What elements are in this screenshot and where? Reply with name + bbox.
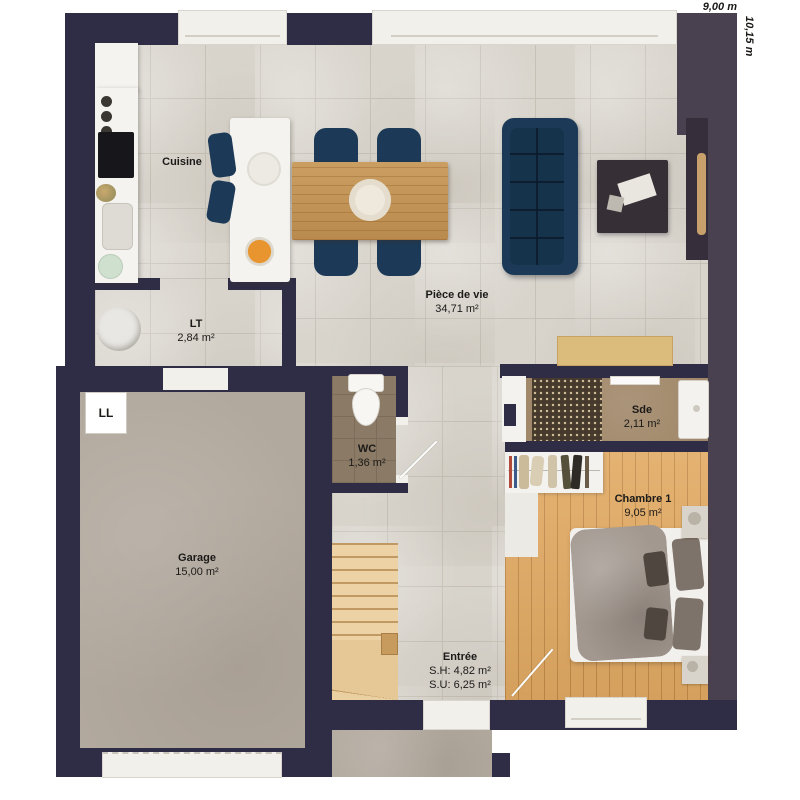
room-area-su: S.U: 6,25 m²: [410, 679, 510, 693]
room-label-entree: Entrée S.H: 4,82 m² S.U: 6,25 m²: [410, 651, 510, 692]
sde-door-handle: [504, 404, 516, 426]
console-bench: [557, 336, 673, 366]
wardrobe-return: [505, 493, 538, 557]
garage-door: [102, 752, 282, 778]
room-label-chambre1: Chambre 1 9,05 m²: [603, 493, 683, 521]
wall-living-sde: [500, 364, 708, 378]
clothes-item: [519, 455, 529, 489]
room-area: 2,11 m²: [602, 418, 682, 432]
water-heater: [97, 307, 141, 351]
wc-door-jamb-top: [396, 417, 408, 425]
front-door: [423, 700, 490, 730]
room-area: 15,00 m²: [157, 566, 237, 580]
kitchen-sink: [102, 203, 133, 250]
kitchen-plant: [96, 184, 116, 202]
room-area: 9,05 m²: [603, 507, 683, 521]
dining-chair: [314, 236, 358, 276]
room-label-garage: Garage 15,00 m²: [157, 552, 237, 580]
bed-duvet: [570, 524, 675, 662]
shower-door: [610, 376, 660, 385]
magazine: [607, 195, 625, 213]
room-name: Sde: [602, 404, 682, 418]
wall-porch-stub: [492, 753, 510, 777]
room-name: WC: [327, 443, 407, 457]
clothes-item: [509, 456, 512, 488]
stove-knob: [101, 111, 112, 122]
living-bay-window: [372, 10, 677, 45]
clothes-item: [514, 456, 517, 488]
wall-right: [708, 45, 737, 730]
cooktop: [98, 132, 134, 178]
room-label-sde: Sde 2,11 m²: [602, 404, 682, 432]
table-centerpiece: [349, 179, 391, 221]
sde-sink-drain: [693, 405, 700, 412]
kitchen-counter-corner: [95, 43, 138, 90]
sofa-cushions: [510, 128, 564, 265]
wall-wc-bottom: [332, 483, 408, 493]
dimension-width: 9,00 m: [685, 1, 737, 13]
bedroom-window: [565, 697, 647, 728]
room-label-lt: LT 2,84 m²: [156, 318, 236, 346]
floor-plan: LL Cuisine Pièce de vie 34,71 m² LT 2,84…: [0, 0, 800, 800]
clothes-item: [585, 456, 589, 488]
room-label-wc: WC 1,36 m²: [327, 443, 407, 471]
room-area: 34,71 m²: [397, 303, 517, 317]
kitchen-window: [178, 10, 287, 45]
washing-machine-label: LL: [99, 406, 114, 420]
tv: [697, 153, 706, 235]
room-area: 2,84 m²: [156, 332, 236, 346]
bed-pillow: [671, 537, 704, 592]
wall-bottom: [332, 700, 737, 730]
wall-sde-chambre: [505, 441, 708, 452]
kitchen-bowl: [98, 254, 123, 279]
shower: [532, 378, 602, 441]
room-name: Pièce de vie: [397, 289, 517, 303]
lt-garage-doorway: [163, 368, 228, 390]
room-label-piece-de-vie: Pièce de vie 34,71 m²: [397, 289, 517, 317]
island-plate: [247, 152, 281, 186]
room-area-sh: S.H: 4,82 m²: [410, 665, 510, 679]
nightstand-lamp: [687, 661, 698, 672]
wall-lt-right: [282, 278, 296, 368]
wall-left: [65, 13, 95, 368]
wall-garage-left: [56, 373, 80, 777]
bed-cushion: [643, 607, 668, 641]
clothes-item: [548, 455, 557, 488]
wall-garage-right: [305, 373, 332, 777]
bed-cushion: [643, 551, 670, 588]
room-label-cuisine: Cuisine: [142, 156, 222, 170]
washing-machine: LL: [85, 392, 127, 434]
wall-wc-right: [396, 366, 408, 421]
stair-newel: [381, 633, 398, 655]
room-name: Chambre 1: [603, 493, 683, 507]
room-name: Entrée: [410, 651, 510, 665]
stove-knob: [101, 96, 112, 107]
fruit-bowl: [245, 237, 274, 266]
dimension-depth: 10,15 m: [743, 16, 755, 56]
room-area: 1,36 m²: [327, 457, 407, 471]
porch-floor: [332, 730, 492, 777]
staircase-straight: [332, 543, 398, 640]
bed-pillow: [672, 597, 704, 651]
room-name: Garage: [157, 552, 237, 566]
room-name: Cuisine: [142, 156, 222, 170]
dining-chair: [377, 236, 421, 276]
nightstand-lamp: [688, 512, 701, 525]
room-name: LT: [156, 318, 236, 332]
